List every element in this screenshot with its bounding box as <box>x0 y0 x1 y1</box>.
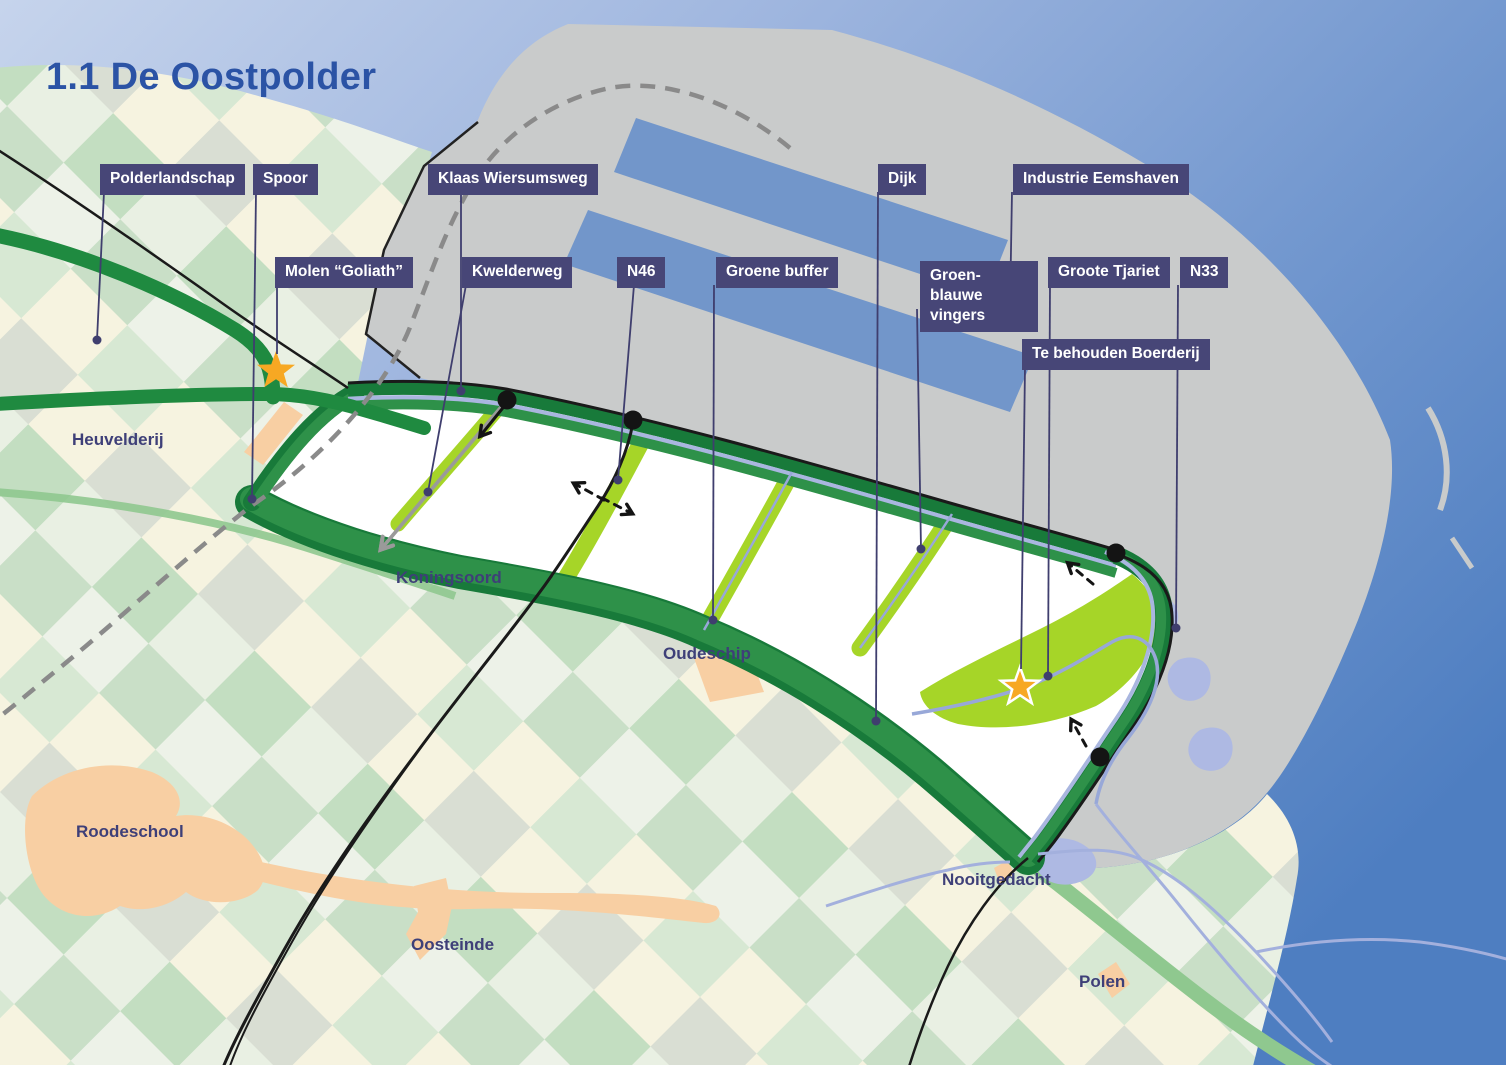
leader-dot-kwelderweg <box>424 488 433 497</box>
leader-dot-groen-blauwe-vingers <box>917 545 926 554</box>
leader-dot-polderlandschap <box>93 336 102 345</box>
leader-dot-spoor <box>248 495 257 504</box>
leader-line-groene-buffer <box>713 285 714 620</box>
leader-dot-klaas-wiersumsweg <box>457 387 466 396</box>
leader-dot-groote-tjariet <box>1044 672 1053 681</box>
map-canvas <box>0 0 1506 1065</box>
leader-dot-dijk <box>872 717 881 726</box>
leader-dot-n33 <box>1172 624 1181 633</box>
oostpolder-map-page: 1.1 De Oostpolder PolderlandschapSpoorKl… <box>0 0 1506 1065</box>
entrance-dot <box>624 411 643 430</box>
leader-dot-groene-buffer <box>709 616 718 625</box>
entrance-dot <box>1091 748 1110 767</box>
entrance-dot <box>1107 544 1126 563</box>
entrance-dot <box>498 391 517 410</box>
leader-dot-n46 <box>614 476 623 485</box>
leader-dot-industrie-eemshaven <box>1006 304 1015 313</box>
